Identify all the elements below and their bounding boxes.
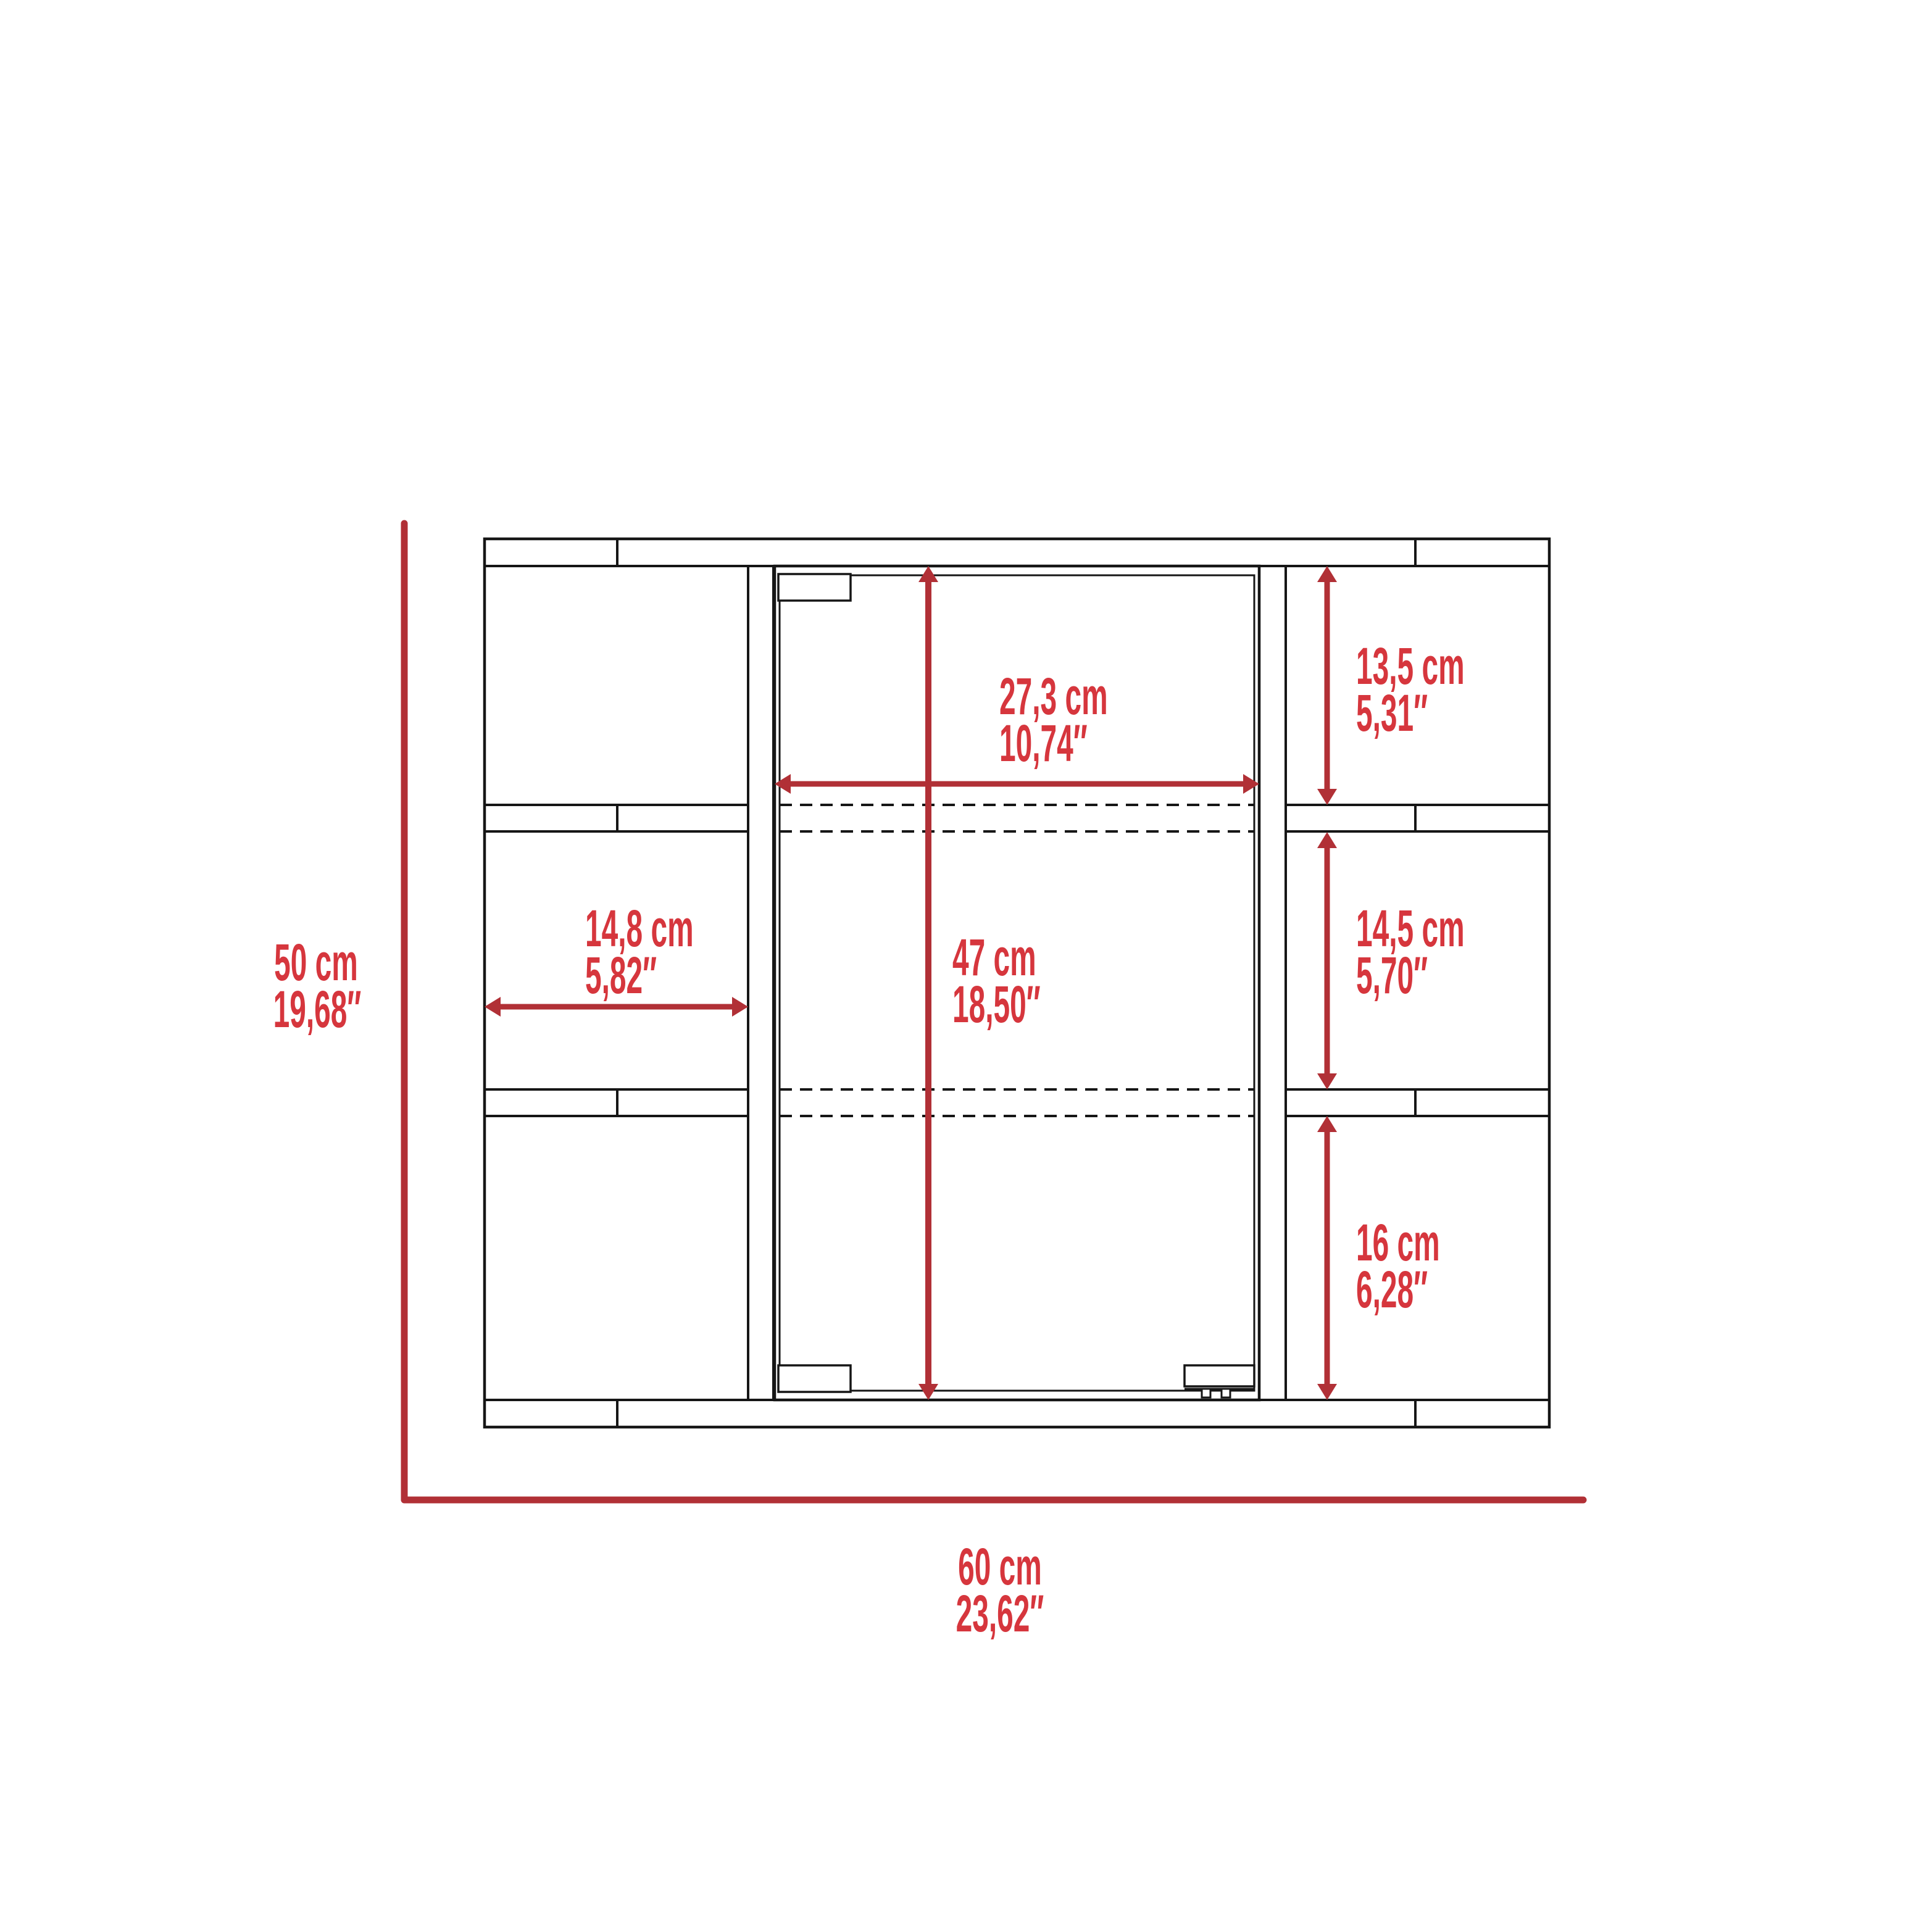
dim-label-overall-width-in: 23,62″ [956, 1585, 1044, 1643]
dimension-arrow-right-bottom-shelf [1317, 1116, 1337, 1400]
dim-label-right-middle-shelf-in: 5,70″ [1356, 947, 1428, 1004]
door-damper-clip-1 [1202, 1389, 1210, 1397]
dim-label-door-width-in: 10,74″ [999, 715, 1088, 772]
dim-label-right-bottom-shelf-in: 6,28″ [1356, 1261, 1428, 1318]
diagram-canvas: 27,3 cm 10,74″ 47 cm 18,50″ 14,8 cm 5,82… [0, 0, 1932, 1932]
dim-label-left-shelf-width-in: 5,82″ [585, 947, 657, 1004]
door-hinge-top [778, 574, 851, 601]
cabinet-dimension-diagram: 27,3 cm 10,74″ 47 cm 18,50″ 14,8 cm 5,82… [0, 0, 1932, 1932]
dimension-arrow-right-top-shelf [1317, 566, 1337, 805]
dim-label-door-height-in: 18,50″ [952, 976, 1041, 1033]
dimension-arrow-door-height [918, 566, 938, 1400]
door-hinge-bottom [778, 1365, 851, 1392]
door-damper-box [1185, 1365, 1254, 1386]
dimension-arrow-door-width [775, 774, 1259, 794]
door-damper-clip-2 [1222, 1389, 1230, 1397]
dimension-arrow-right-middle-shelf [1317, 832, 1337, 1089]
dim-label-right-top-shelf-in: 5,31″ [1356, 685, 1428, 742]
dim-label-overall-height-in: 19,68″ [273, 981, 362, 1038]
